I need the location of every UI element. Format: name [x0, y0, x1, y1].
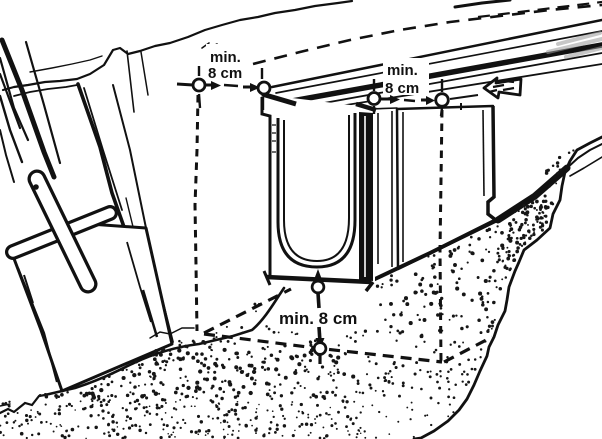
svg-text:8 cm: 8 cm	[208, 65, 242, 82]
svg-text:min.: min.	[387, 62, 418, 79]
svg-text:8 cm: 8 cm	[385, 80, 419, 97]
svg-text:min.: min.	[210, 49, 241, 66]
svg-text:min. 8 cm: min. 8 cm	[279, 309, 357, 328]
